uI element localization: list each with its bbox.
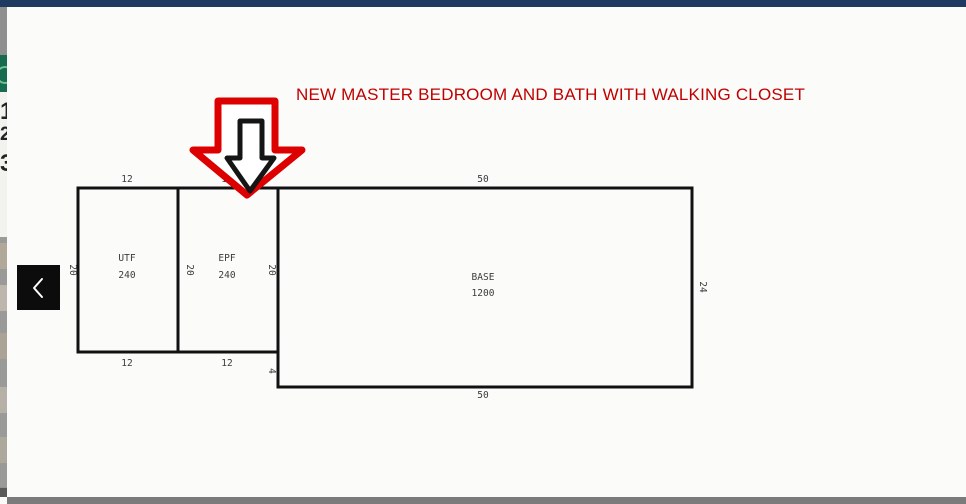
window-bottom-bar [7, 497, 966, 504]
sketch-outlines [78, 188, 692, 387]
dim-utf-bottom: 12 [121, 358, 132, 369]
dim-epf-bottom: 12 [221, 358, 232, 369]
dim-utf-top: 12 [121, 174, 132, 185]
dim-base-top: 50 [477, 174, 489, 185]
dim-base-bottom: 50 [477, 390, 489, 401]
epf-code-label: EPF [218, 253, 235, 264]
epf-sqft-label: 240 [218, 270, 235, 281]
utf-code-label: UTF [118, 253, 135, 264]
dim-epf-right: 20 [266, 264, 277, 276]
dim-utf-left: 20 [67, 264, 78, 276]
floor-plan-sketch: 12 12 50 20 20 20 24 12 12 4 50 UTF 240 … [0, 0, 966, 504]
base-code-label: BASE [472, 272, 495, 283]
dim-base-right: 24 [697, 281, 708, 293]
dim-epf-left: 20 [184, 264, 195, 276]
utf-sqft-label: 240 [118, 270, 135, 281]
base-sqft-label: 1200 [472, 288, 495, 299]
dim-base-step: 4 [266, 368, 277, 374]
sketch-viewer-window: 1 2 3 NEW MASTER BEDROOM AND BATH WITH W… [0, 0, 966, 504]
